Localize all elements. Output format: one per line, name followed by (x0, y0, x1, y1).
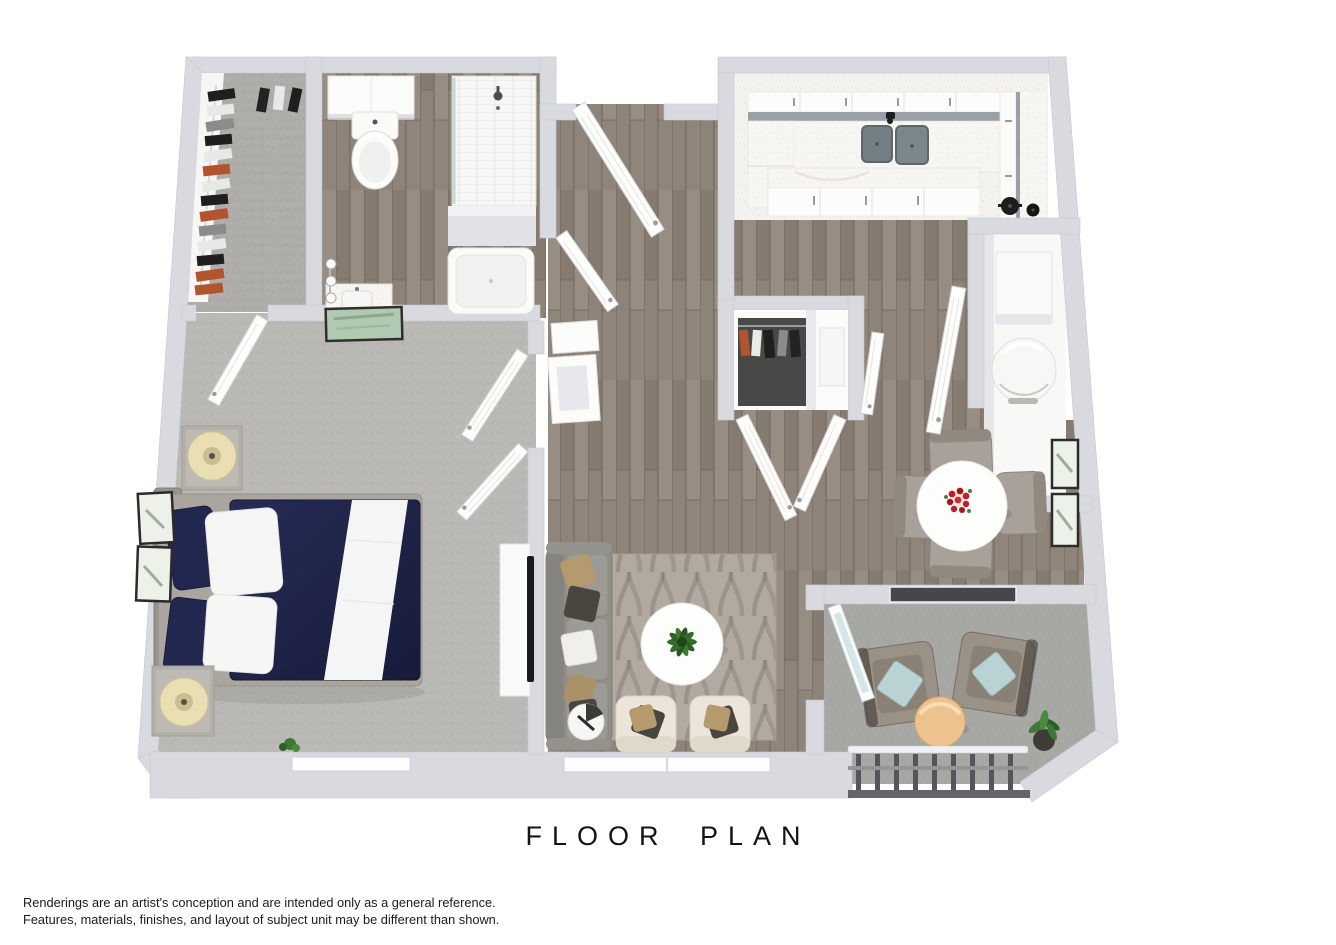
disclaimer-line-1: Renderings are an artist's conception an… (23, 894, 499, 911)
patio-chair-right (952, 629, 1039, 718)
disclaimer: Renderings are an artist's conception an… (23, 894, 499, 928)
shower (452, 76, 536, 206)
wall-utility-top (968, 218, 1080, 234)
nightstand-bottom (152, 666, 214, 736)
kitchen-peninsula (768, 168, 980, 216)
hall-shelf-niche (548, 320, 600, 423)
tv-icon (527, 556, 534, 682)
wall-closet-bath (306, 57, 322, 321)
living-room (546, 542, 776, 752)
dresser-tv (500, 544, 534, 696)
floor-plan-rendering (0, 0, 1336, 812)
floor-plan-page: FLOOR PLAN Renderings are an artist's co… (0, 0, 1336, 945)
wall-bath-hall (540, 120, 556, 238)
pillows (163, 505, 284, 675)
nightstand-top (182, 426, 242, 490)
green-wall-art (326, 307, 403, 341)
wall-balcony-west-a (806, 585, 824, 610)
wall-utility-left (968, 234, 984, 408)
dresser (500, 544, 530, 696)
bedroom-wall-frames (136, 492, 174, 601)
side-table (568, 704, 604, 740)
coat-closet (718, 296, 864, 420)
accent-chair-left (616, 696, 676, 752)
bedroom-window (292, 757, 410, 771)
balcony-window (890, 587, 1016, 602)
dining-wall-frames (1052, 440, 1078, 546)
wall-kitchen-west (718, 73, 734, 300)
wall-top-right (718, 57, 1066, 73)
accent-chair-right (690, 696, 750, 752)
bathtub-icon (448, 248, 534, 314)
toilet-icon (352, 112, 398, 189)
kitchen (748, 92, 1046, 220)
closet-shelf-box (820, 328, 844, 386)
wall-balcony-west-b (806, 700, 824, 754)
bed (154, 488, 422, 692)
wall-bedroom-north-a (182, 305, 196, 321)
washer-icon (996, 252, 1052, 324)
wall-entry-top-left (540, 104, 576, 120)
page-title: FLOOR PLAN (0, 821, 1336, 852)
wall-top-left (186, 57, 556, 73)
wall-bedroom-east-a (528, 321, 544, 354)
vanity-lights-icon (326, 259, 336, 303)
disclaimer-line-2: Features, materials, finishes, and layou… (23, 911, 499, 928)
